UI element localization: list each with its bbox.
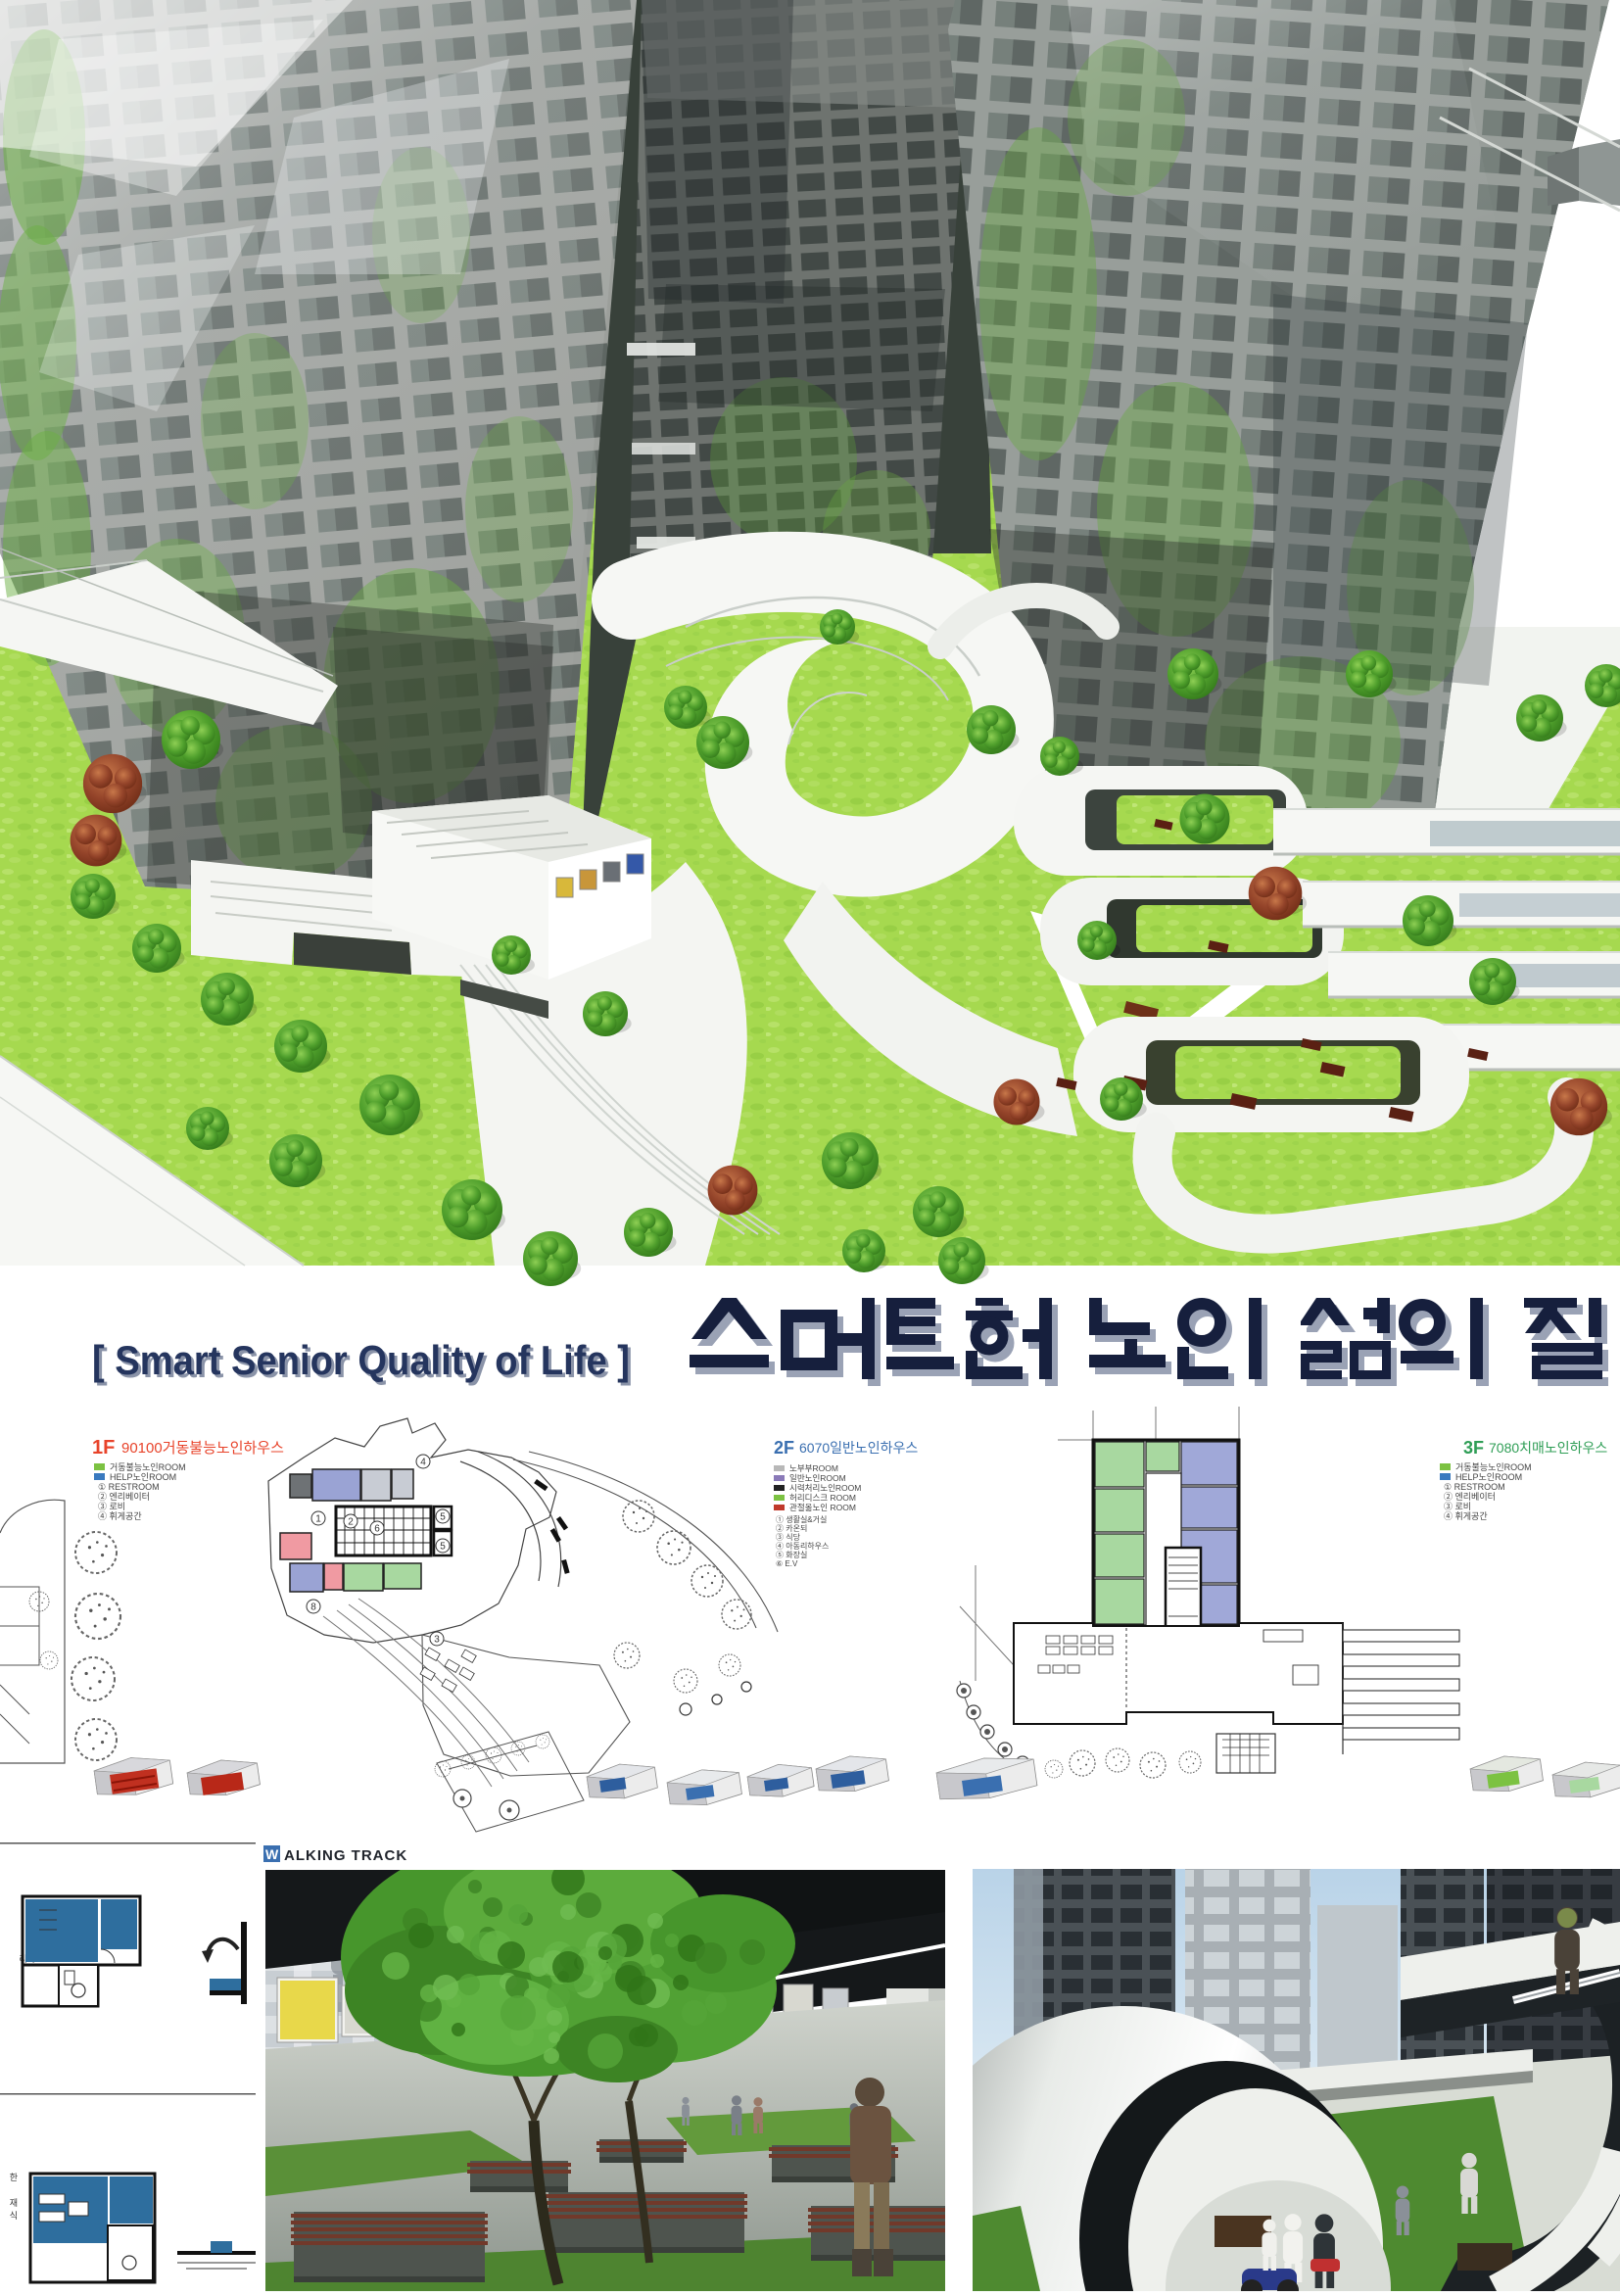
svg-text:6070일반노인하우스: 6070일반노인하우스 [799,1440,918,1456]
svg-text:② 엔리베이터: ② 엔리베이터 [1444,1492,1496,1502]
svg-text:① RESTROOM: ① RESTROOM [1444,1482,1505,1492]
svg-text:⑤ 화장실: ⑤ 화장실 [776,1550,807,1559]
svg-text:② 엔리베이터: ② 엔리베이터 [98,1492,150,1502]
svg-text:관절옮노인 ROOM: 관절옮노인 ROOM [789,1503,856,1512]
svg-text:시력처리노인ROOM: 시력처리노인ROOM [789,1483,861,1493]
svg-text:노부부ROOM: 노부부ROOM [789,1463,838,1473]
svg-text:7080치매노인하우스: 7080치매노인하우스 [1489,1440,1607,1456]
svg-text:④ 아동리하우스: ④ 아동리하우스 [776,1541,829,1551]
svg-text:2: 2 [348,1517,354,1528]
svg-text:허리디스크 ROOM: 허리디스크 ROOM [789,1493,856,1503]
svg-text:ALKING TRACK: ALKING TRACK [284,1847,407,1864]
svg-text:W: W [265,1846,279,1862]
svg-text:5: 5 [440,1542,446,1553]
svg-text:[ Smart Senior Quality of Life: [ Smart Senior Quality of Life ] [92,1337,630,1383]
svg-text:3: 3 [434,1635,440,1646]
svg-text:5: 5 [440,1512,446,1523]
svg-text:재: 재 [10,2198,18,2208]
svg-text:3F: 3F [1463,1438,1484,1458]
svg-text:① RESTROOM: ① RESTROOM [98,1482,160,1492]
svg-text:④ 휘게공간: ④ 휘게공간 [1444,1511,1488,1521]
svg-text:② 카온되: ② 카온되 [776,1524,807,1533]
svg-text:2F: 2F [774,1438,794,1458]
svg-text:6: 6 [374,1524,380,1535]
svg-text:① 생활실&거실: ① 생활실&거실 [776,1514,827,1524]
svg-text:거동불능노인ROOM: 거동불능노인ROOM [110,1462,186,1472]
svg-text:4: 4 [420,1458,426,1468]
svg-text:③ 로비: ③ 로비 [1444,1502,1471,1511]
svg-text:③ 로비: ③ 로비 [98,1502,125,1511]
svg-text:거동불능노인ROOM: 거동불능노인ROOM [1455,1462,1532,1472]
svg-text:일반노인ROOM: 일반노인ROOM [789,1473,846,1483]
svg-text:1: 1 [315,1514,321,1525]
svg-text:④ 휘게공간: ④ 휘게공간 [98,1511,142,1521]
svg-text:식: 식 [10,2211,18,2221]
svg-text:8: 8 [310,1602,316,1613]
svg-text:⑥ E.V: ⑥ E.V [776,1559,798,1568]
svg-text:90100거동불능노인하우스: 90100거동불능노인하우스 [121,1440,284,1457]
svg-text:HELP노인ROOM: HELP노인ROOM [1455,1472,1522,1482]
svg-text:③ 식당: ③ 식당 [776,1532,801,1542]
svg-text:HELP노인ROOM: HELP노인ROOM [110,1472,176,1482]
svg-text:한: 한 [10,2173,18,2182]
svg-text:1F: 1F [92,1437,115,1459]
